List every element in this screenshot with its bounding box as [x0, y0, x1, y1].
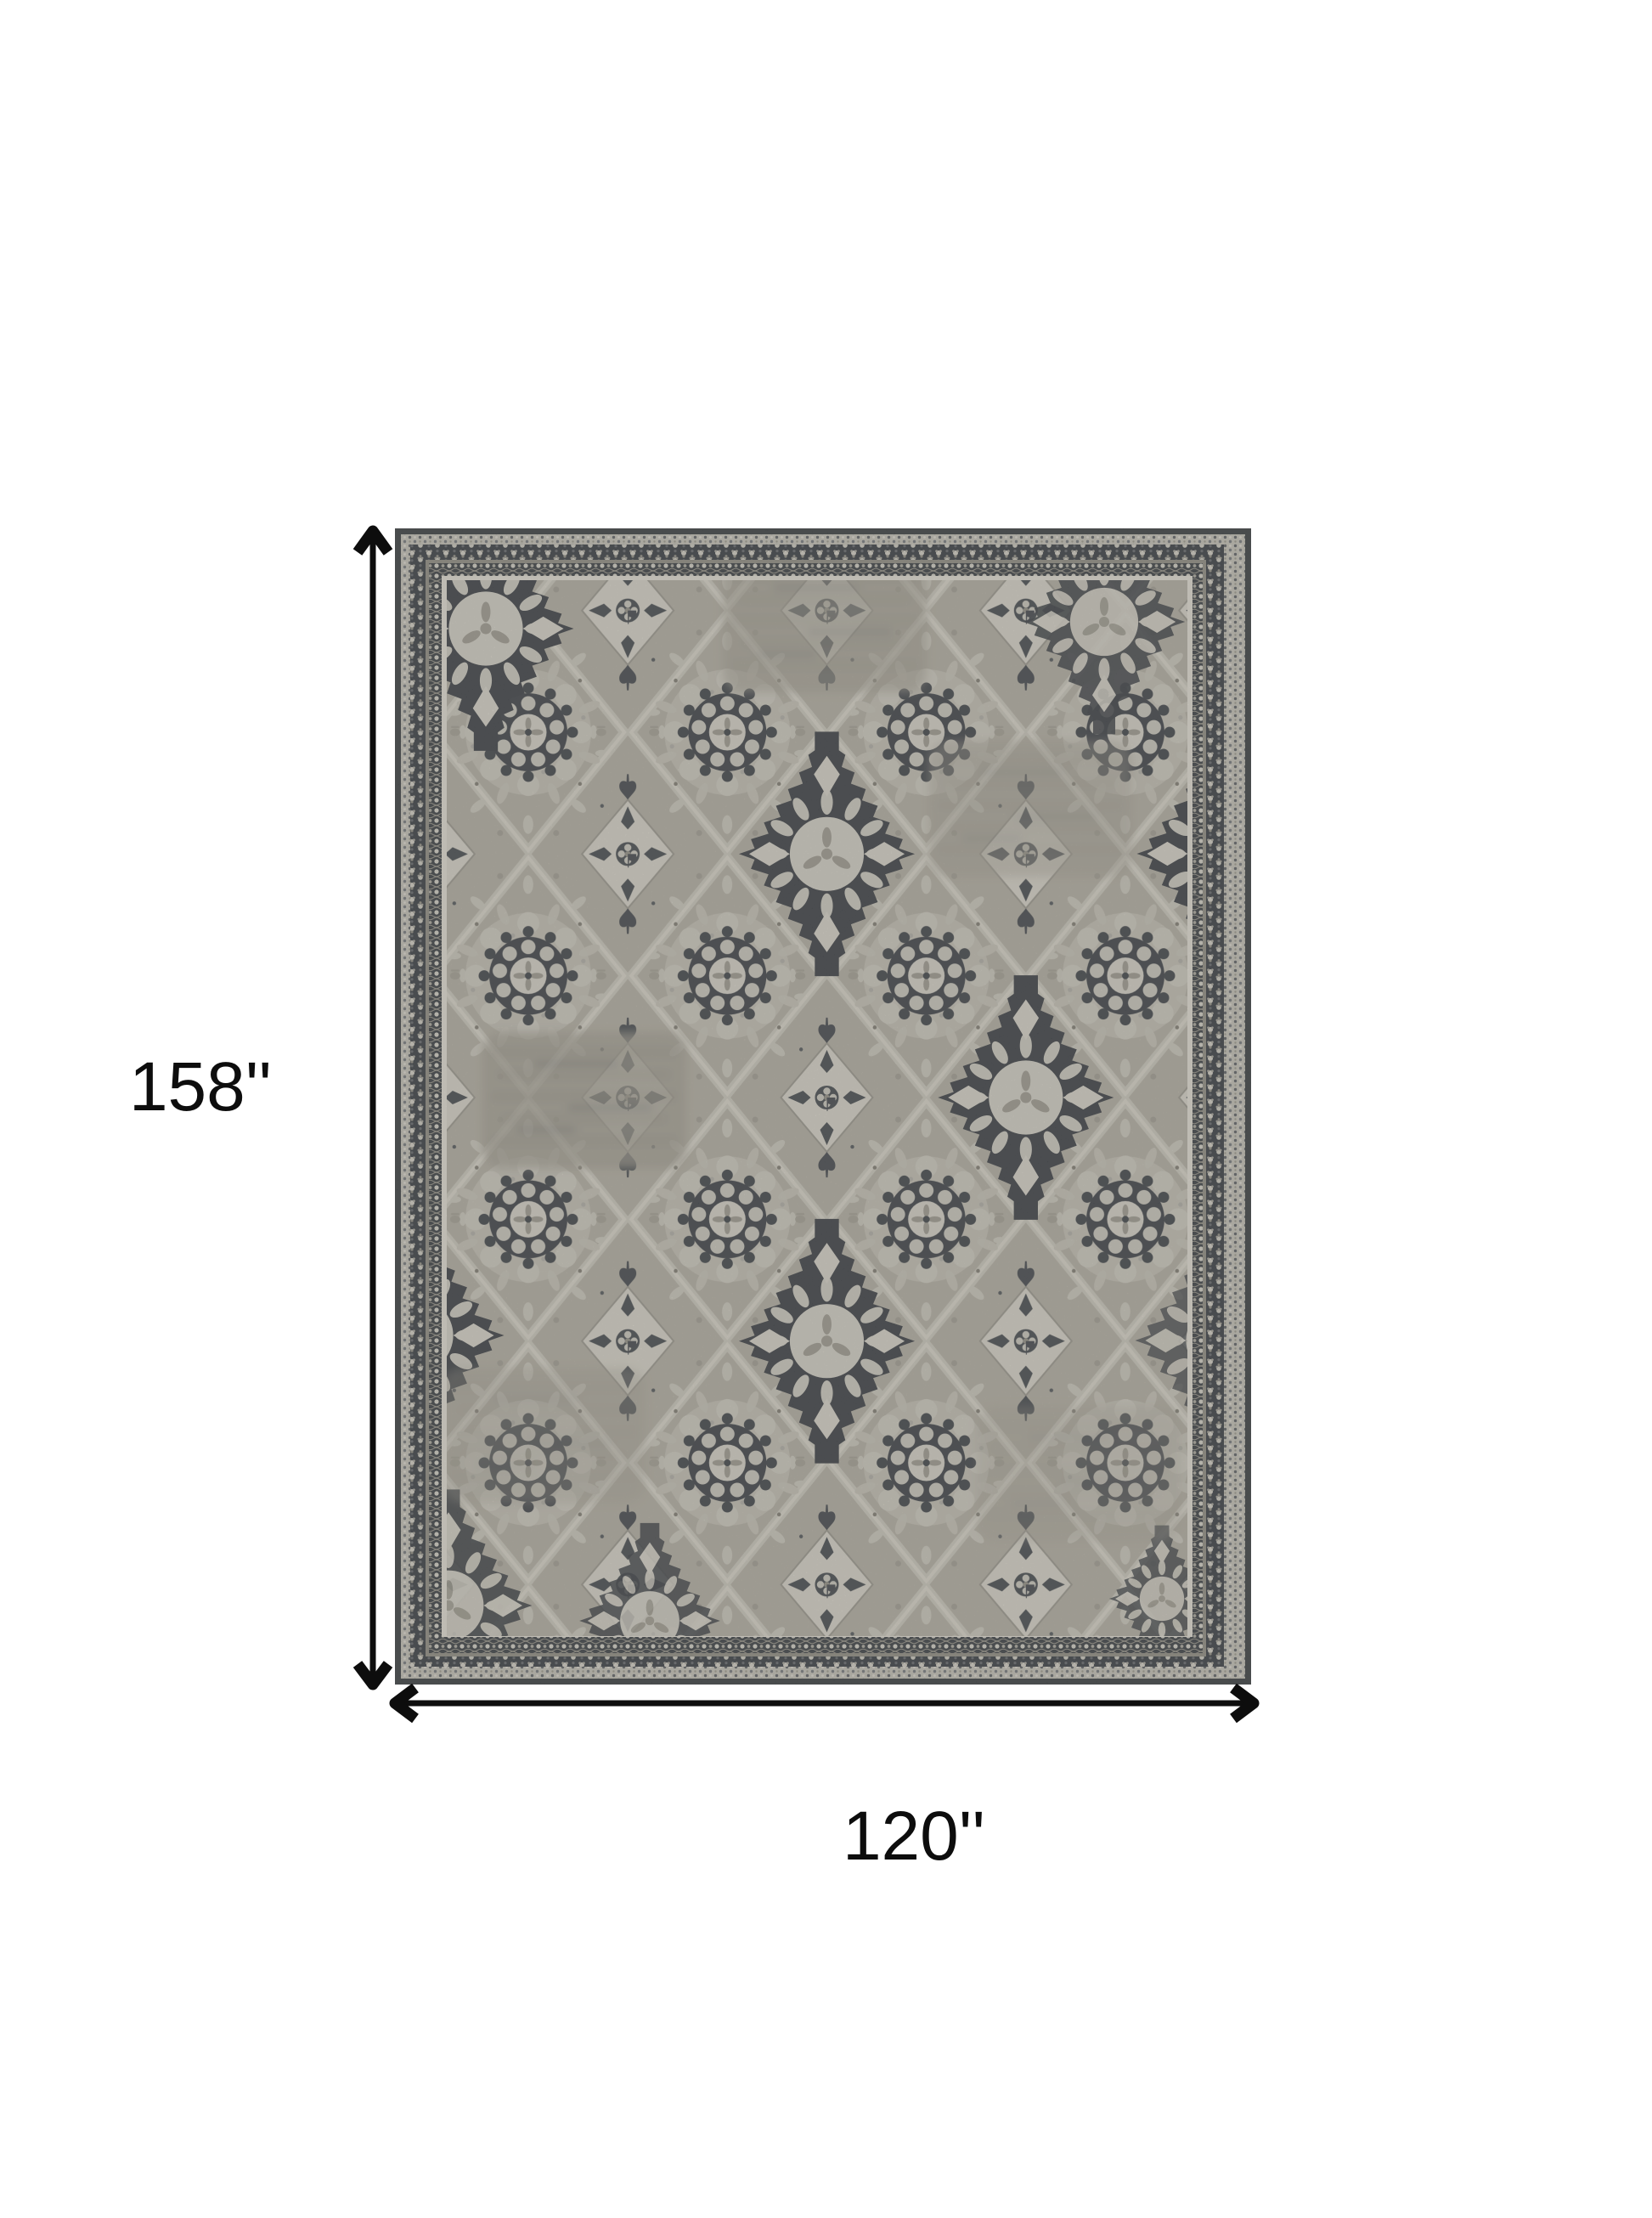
svg-text:158'': 158'' [129, 1048, 272, 1126]
svg-text:120'': 120'' [843, 1798, 985, 1875]
